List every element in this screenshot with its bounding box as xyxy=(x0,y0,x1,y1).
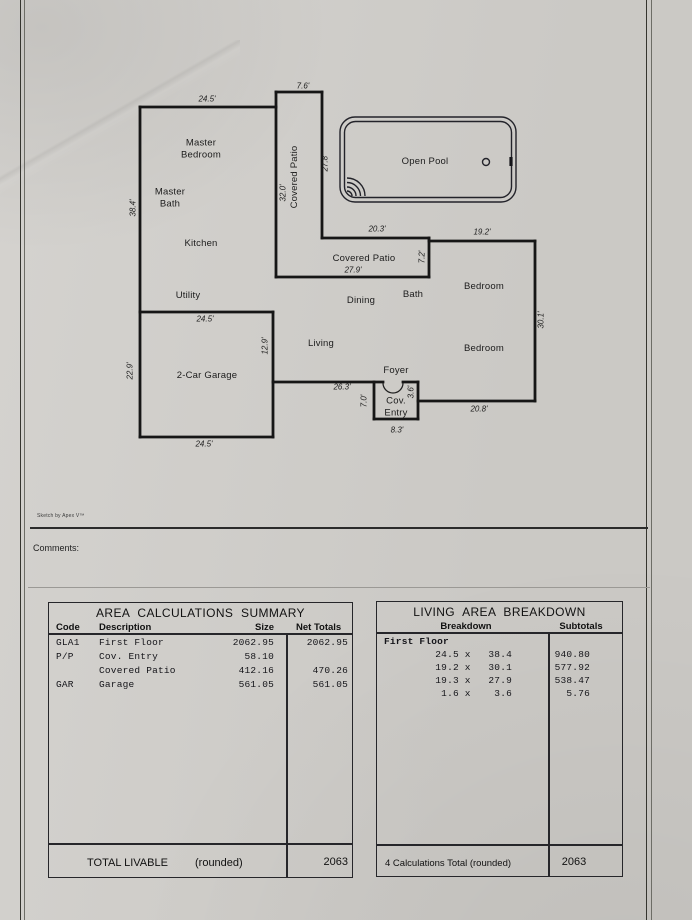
dim-garage-22-9: 22.9' xyxy=(126,362,135,379)
room-label-bedroom-south: Bedroom xyxy=(464,343,504,355)
comments-bottom-line xyxy=(28,587,650,588)
cell-size: 58.10 xyxy=(189,651,274,662)
net-totals-separator xyxy=(286,634,288,877)
room-label-bath: Bath xyxy=(403,289,423,301)
living-breakdown-title: LIVING AREA BREAKDOWN xyxy=(377,605,622,619)
cell-breakdown: 19.3 x 27.9 xyxy=(407,675,512,686)
cell-subtotal: 577.92 xyxy=(527,662,590,673)
total-row-line xyxy=(377,844,622,846)
total-livable-value: 2063 xyxy=(294,856,348,868)
section-first-floor: First Floor xyxy=(384,636,449,647)
comments-label: Comments: xyxy=(33,543,79,553)
scanned-appraisal-sketch-page: Master Bedroom Master Bath Kitchen Utili… xyxy=(0,0,692,920)
dim-patio-27-9: 27.9' xyxy=(344,266,361,275)
room-label-foyer: Foyer xyxy=(383,365,408,377)
col-header-size: Size xyxy=(206,622,274,633)
entry-door-swing-arc xyxy=(383,383,403,393)
pool-ladder-icon xyxy=(483,159,490,166)
dim-bedroom-20-8: 20.8' xyxy=(470,405,487,414)
cell-size: 412.16 xyxy=(189,665,274,676)
cell-size: 2062.95 xyxy=(189,637,274,648)
cell-net: 561.05 xyxy=(294,679,348,690)
dim-top-24-5: 24.5' xyxy=(198,95,215,104)
room-label-cov-entry: Cov. Entry xyxy=(384,395,407,418)
room-label-bedroom-north: Bedroom xyxy=(464,281,504,293)
room-label-covered-patio-vertical: Covered Patio xyxy=(289,146,301,209)
dim-pool-27-8: 27.8' xyxy=(321,154,330,171)
dim-patio-7-2: 7.2' xyxy=(418,251,427,264)
cell-net: 470.26 xyxy=(294,665,348,676)
room-label-dining: Dining xyxy=(347,295,375,307)
header-underline xyxy=(49,633,352,635)
cell-code: GLA1 xyxy=(56,637,80,648)
calculations-total-label: 4 Calculations Total (rounded) xyxy=(385,858,511,869)
cell-code: GAR xyxy=(56,679,74,690)
living-area-breakdown-table: LIVING AREA BREAKDOWN Breakdown Subtotal… xyxy=(376,601,623,877)
room-label-covered-patio: Covered Patio xyxy=(333,253,396,265)
col-header-description: Description xyxy=(99,622,151,633)
cell-description: Garage xyxy=(99,679,134,690)
room-label-utility: Utility xyxy=(176,290,201,302)
dim-patio-strip-7-6: 7.6' xyxy=(297,82,310,91)
dim-entry-8-3: 8.3' xyxy=(391,426,404,435)
dim-garage-top-24-5: 24.5' xyxy=(196,315,213,324)
dim-left-38-4: 38.4' xyxy=(129,199,138,216)
room-label-garage: 2-Car Garage xyxy=(177,370,237,382)
cell-subtotal: 940.80 xyxy=(527,649,590,660)
dim-entry-7-0: 7.0' xyxy=(360,395,369,408)
dim-right-30-1: 30.1' xyxy=(537,311,546,328)
room-label-master-bedroom: Master Bedroom xyxy=(181,137,221,160)
col-header-breakdown: Breakdown xyxy=(416,621,516,632)
dim-entry-3-6: 3.6' xyxy=(407,386,416,399)
dim-pool-20-3: 20.3' xyxy=(368,225,385,234)
room-label-living: Living xyxy=(308,338,334,350)
cell-subtotal: 538.47 xyxy=(527,675,590,686)
total-rounded-note: (rounded) xyxy=(195,857,243,869)
sketch-credit: Sketch by Apex V™ xyxy=(37,513,85,519)
calculations-total-value: 2063 xyxy=(549,856,599,868)
cell-breakdown: 24.5 x 38.4 xyxy=(407,649,512,660)
cell-description: First Floor xyxy=(99,637,164,648)
cell-breakdown: 1.6 x 3.6 xyxy=(407,688,512,699)
room-label-kitchen: Kitchen xyxy=(184,238,217,250)
header-underline xyxy=(377,632,622,634)
cell-subtotal: 5.76 xyxy=(527,688,590,699)
dim-garage-bottom-24-5: 24.5' xyxy=(195,440,212,449)
room-label-open-pool: Open Pool xyxy=(402,156,449,168)
cell-breakdown: 19.2 x 30.1 xyxy=(407,662,512,673)
cell-net: 2062.95 xyxy=(294,637,348,648)
total-livable-label: TOTAL LIVABLE xyxy=(87,857,168,869)
cell-size: 561.05 xyxy=(189,679,274,690)
col-header-net-totals: Net Totals xyxy=(296,622,341,633)
dim-living-26-3: 26.3' xyxy=(333,383,350,392)
dim-patio-strip-32-0: 32.0' xyxy=(279,184,288,201)
total-row-line xyxy=(49,843,352,845)
col-header-subtotals: Subtotals xyxy=(537,621,625,632)
cell-description: Cov. Entry xyxy=(99,651,158,662)
room-label-master-bath: Master Bath xyxy=(155,186,185,209)
dim-garage-12-9: 12.9' xyxy=(261,337,270,354)
col-header-code: Code xyxy=(56,622,80,633)
area-summary-title: AREA CALCULATIONS SUMMARY xyxy=(49,606,352,620)
cell-description: Covered Patio xyxy=(99,665,176,676)
area-calculations-summary-table: AREA CALCULATIONS SUMMARY Code Descripti… xyxy=(48,602,353,878)
dim-bedroom-19-2: 19.2' xyxy=(473,228,490,237)
divider-line xyxy=(30,527,648,529)
cell-code: P/P xyxy=(56,651,74,662)
